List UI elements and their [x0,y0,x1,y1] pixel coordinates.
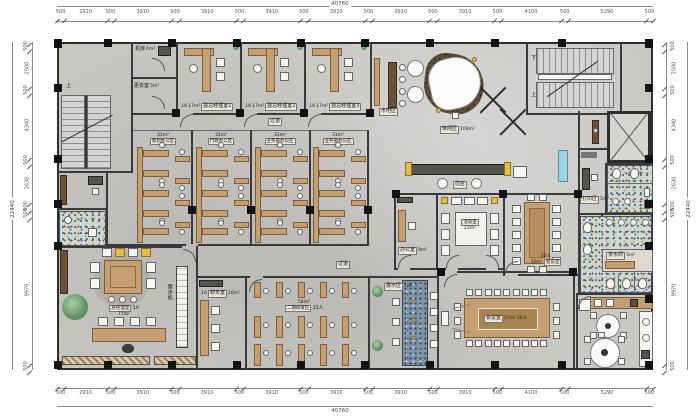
wall [304,42,306,113]
sofa-seat [490,213,499,224]
guest-chair [344,72,353,81]
task-chair [179,149,185,155]
vgm-office-3-label: 1A.17m²副总经理室3 [309,103,361,111]
dimension-label: 5290 [601,9,614,15]
conference-26-label: 会议室 57m² 26人 [484,315,527,323]
column [491,39,499,47]
stool [392,338,400,346]
desk [202,170,228,177]
small-office-label: 办公室9m² [398,247,427,255]
desk [293,156,308,162]
dimension-line [57,388,653,389]
desk [175,156,190,162]
corridor-top-label: 过道 [268,118,282,126]
tea-chair [102,248,112,257]
task-chair [263,288,269,294]
dimension-tick [651,19,656,24]
dimension-label: 500 [670,41,676,51]
bar-bench [374,58,380,106]
task-chair [159,220,165,226]
appliance [594,299,602,307]
dimension-label: 2910 [79,9,92,15]
desk [261,210,287,217]
stair-down-label: 下 [531,56,536,62]
logo-pillar [471,178,482,189]
wall [498,268,504,270]
stall-wall [607,183,653,184]
tea-cup [108,296,115,303]
task-chair [355,149,361,155]
bar-stool [399,76,406,83]
desk-chair [98,317,108,326]
guest-chair [280,72,289,81]
dimension-label: 500 [235,9,245,15]
sink [618,219,625,226]
task-chair [329,350,335,356]
dimension-label: 500 [645,390,655,396]
print-nook-label: 打印区5m² [580,196,609,204]
finance-label: 1A财务室20m² [201,290,240,298]
dimension-label: 3910 [394,390,407,396]
bar-stool [399,64,406,71]
column [437,268,445,276]
total-width-top: 40760 [329,1,351,7]
dimension-label: 500 [106,9,116,15]
stool [430,292,438,300]
tea-cup [119,296,126,303]
chair [408,222,416,230]
dimension-label: 3910 [330,390,343,396]
column [236,109,244,117]
conference-chair [454,317,461,325]
toilet [630,168,639,179]
desk [143,228,169,235]
task-chair [277,182,283,188]
conference-chair [540,289,547,296]
conference-chair [553,317,560,325]
task-chair [238,185,244,191]
dimension-label: 500 [170,390,180,396]
rd-area-label: 54m² 二期研发区 15人 [272,300,336,311]
wall [578,148,609,150]
dimension-tick [662,371,667,376]
bar-stool [399,88,406,95]
column [426,361,434,369]
task-chair [307,288,313,294]
treadmill [176,266,188,348]
dining-chair [590,312,597,319]
task-chair [307,350,313,356]
column [558,361,566,369]
desk [320,282,327,298]
dimension-tick [27,371,32,376]
task-chair [263,322,269,328]
toilet [622,278,631,289]
desk [202,210,228,217]
stair-up-label: 上 [66,84,71,90]
task-chair [159,142,165,148]
conference-chair [513,340,520,347]
stool [430,324,438,332]
desk [234,178,249,184]
task-chair [285,322,291,328]
conference-chair [531,340,538,347]
dimension-label: 3910 [136,390,149,396]
tea-chair [146,278,156,289]
conference-chair [503,340,510,347]
dimension-label: 3910 [265,9,278,15]
corridor-bottom-label: 过道 [336,261,350,269]
conference-chair [475,340,482,347]
dining-chair [584,336,591,343]
dimension-label: 500 [23,362,29,372]
wall [57,171,133,173]
meeting-chair [552,231,561,239]
wall [370,42,372,113]
desk [175,178,190,184]
desk [342,282,349,298]
column [426,39,434,47]
desk [143,150,169,157]
desk [319,190,345,197]
desk [298,316,305,338]
tea-chair [146,262,156,273]
conference-chair [531,289,538,296]
column [300,109,308,117]
desk [261,150,287,157]
equipment-cabinet [158,46,171,56]
dimension-label: 500 [560,390,570,396]
task-chair [285,350,291,356]
column [574,190,582,198]
wall [458,268,486,270]
wall [394,268,398,270]
desk [293,222,308,228]
conference-chair [466,289,473,296]
sofa-seat [490,229,499,240]
partition [367,130,369,244]
total-dim-line [57,6,653,7]
dimension-label: 4100 [525,9,538,15]
dimension-label: 500 [106,390,116,396]
wall [578,213,653,215]
wall [196,276,250,278]
dimension-label: 500 [645,9,655,15]
partition [191,130,193,244]
desk [320,316,327,338]
sofa-seat [441,213,450,224]
wall [131,42,133,173]
side-table [407,60,424,77]
wall [394,193,396,270]
task-chair [218,182,224,188]
dimension-label: 500 [493,9,503,15]
sofa-seat [441,245,450,256]
lamp [441,197,448,204]
partition [309,130,311,244]
sofa-seat [477,197,488,205]
task-chair [277,220,283,226]
gm-office-label: 总经理室 1A 77m² [96,306,152,317]
dimension-label: 500 [670,155,676,165]
task-chair [351,288,357,294]
locker-room-label: 更衣室5m² [134,84,159,90]
negotiation-label: 洽谈室 23m² [456,220,484,231]
wall [437,271,439,370]
desk [254,344,261,366]
wall [321,113,372,115]
dimension-label: 500 [23,85,29,95]
wall [245,278,247,370]
office-chair [189,64,198,73]
conference-chair [494,289,501,296]
total-height-right: 22440 [686,198,692,220]
side-table [407,86,424,103]
desk [143,210,169,217]
dimension-label: 2500 [671,61,677,74]
reception-desk [410,164,506,175]
dimension-label: 3910 [394,9,407,15]
stair-handrail [85,95,87,169]
dimension-label: 3910 [459,9,472,15]
column [168,361,176,369]
cabinet [199,280,223,287]
pantry-label: 茶水间5m² [606,252,635,260]
desk [351,178,366,184]
task-chair [297,193,303,199]
sink [612,198,619,205]
toilet [606,278,615,289]
desk [202,190,228,197]
print-desk [582,168,590,190]
lamp [412,300,416,304]
fixture [88,228,97,237]
total-dim-line [57,406,653,407]
task-chair [307,322,313,328]
desk-end [405,162,412,176]
lamp [412,336,416,340]
dimension-chain-left: 5002500500434050026305005009970500 [24,42,33,370]
task-chair [218,142,224,148]
office-chair [317,64,326,73]
meeting-chair [512,244,521,252]
column [366,109,374,117]
wall [394,193,580,195]
stool [593,128,598,133]
task-chair [355,193,361,199]
meeting-chair [539,266,547,273]
column [297,39,305,47]
desk [234,222,249,228]
pantry-counter [605,261,635,269]
desk [88,176,103,185]
stool [392,318,400,326]
dimension-label: 4340 [671,119,677,132]
desk [175,222,190,228]
task-chair [355,229,361,235]
dimension-chain-right: 5002500500434050026305005009970500 [666,42,675,370]
sofa-seat [441,229,450,240]
task-chair [263,350,269,356]
column [645,295,653,303]
water-bar-label: 水吧区 [379,108,398,116]
dimension-label: 500 [670,362,676,372]
dimension-label: 500 [364,9,374,15]
desk [319,228,345,235]
plant [372,286,383,297]
treadmill-label: 跑步机 [166,284,172,301]
column [188,206,196,214]
wall [57,208,108,210]
column [645,155,653,163]
task-chair [238,193,244,199]
dimension-label: 500 [56,9,66,15]
desk [351,222,366,228]
conference-chair [503,289,510,296]
plant [62,294,88,320]
desk [298,282,305,298]
task-chair [179,229,185,235]
guest-chair [216,58,225,67]
column [54,200,62,208]
wall [620,42,622,115]
tea-chair [141,248,151,257]
sink [630,219,637,226]
desk [398,210,406,242]
task-chair [335,220,341,226]
desk [261,228,287,235]
sofa-seat [451,197,462,205]
desk [202,48,211,92]
desk [342,344,349,366]
task-chair [329,288,335,294]
desk [276,316,283,338]
column [645,242,653,250]
dimension-label: 500 [56,390,66,396]
dimension-label: 500 [493,390,503,396]
task-chair [297,229,303,235]
conference-chair [513,289,520,296]
chair [92,188,99,195]
gallery-label: 展示区7m² [384,283,413,291]
sink [64,216,72,224]
desk [351,156,366,162]
dimension-label: 500 [670,85,676,95]
sink [642,334,650,342]
tea-cup [130,296,137,303]
dimension-label: 500 [23,41,29,51]
meeting-chair [512,231,521,239]
water-feature [558,150,568,182]
column [361,39,369,47]
wall [176,42,178,113]
sideboard [60,250,68,294]
desk [254,316,261,338]
column [499,190,507,198]
conference-chair [454,331,461,339]
desk [202,150,228,157]
dimension-label: 3910 [201,9,214,15]
column [54,242,62,250]
dimension-line [57,21,653,22]
dimension-label: 5290 [601,390,614,396]
column [168,39,176,47]
wall [131,77,178,79]
desk-chair [114,317,124,326]
wall [436,193,438,270]
column [645,200,653,208]
dimension-label: 500 [428,9,438,15]
conference-chair [540,340,547,347]
printer [591,174,598,181]
dining-chair [618,336,625,343]
wall [503,193,505,276]
bar-counter [388,62,397,108]
meeting-chair [552,218,561,226]
task-chair [335,182,341,188]
tea-chair [90,278,100,289]
column [172,109,180,117]
machine-room-label: 机房4m² [135,47,155,53]
dimension-label: 4340 [24,119,30,132]
chair [211,324,220,333]
shelf [581,152,597,158]
column [361,361,369,369]
task-chair [159,182,165,188]
column [233,361,241,369]
wall [573,271,575,368]
column [54,361,62,369]
dimension-label: 9970 [671,283,677,296]
column [233,39,241,47]
guest-chair [216,72,225,81]
tea-table [104,260,142,294]
dimension-line [32,42,33,370]
wall [240,42,242,113]
toilet [583,222,592,233]
projector-screen [441,311,449,326]
desk [319,210,345,217]
chair [211,306,220,315]
gm-desk [92,328,166,342]
stall-wall [618,274,619,293]
desk [330,48,339,92]
stool [392,298,400,306]
dimension-label: 9970 [24,283,30,296]
hall-table [513,166,527,178]
task-chair [179,185,185,191]
column [104,39,112,47]
stool [430,308,438,316]
wall [263,276,437,278]
desk [266,48,275,92]
dimension-label: 3910 [136,9,149,15]
appliance [606,299,614,307]
column [645,361,653,369]
desk [234,156,249,162]
conference-chair [475,289,482,296]
desk [293,178,308,184]
toilet [612,168,621,179]
dimension-label: 2910 [79,390,92,396]
lamp [412,318,416,322]
desk [202,228,228,235]
tea-chair [90,262,100,273]
meeting-chair [512,218,521,226]
task-chair [285,288,291,294]
dimension-chain-top: 5002910500391050039105003910500391050039… [57,13,653,22]
appliance [641,350,650,359]
